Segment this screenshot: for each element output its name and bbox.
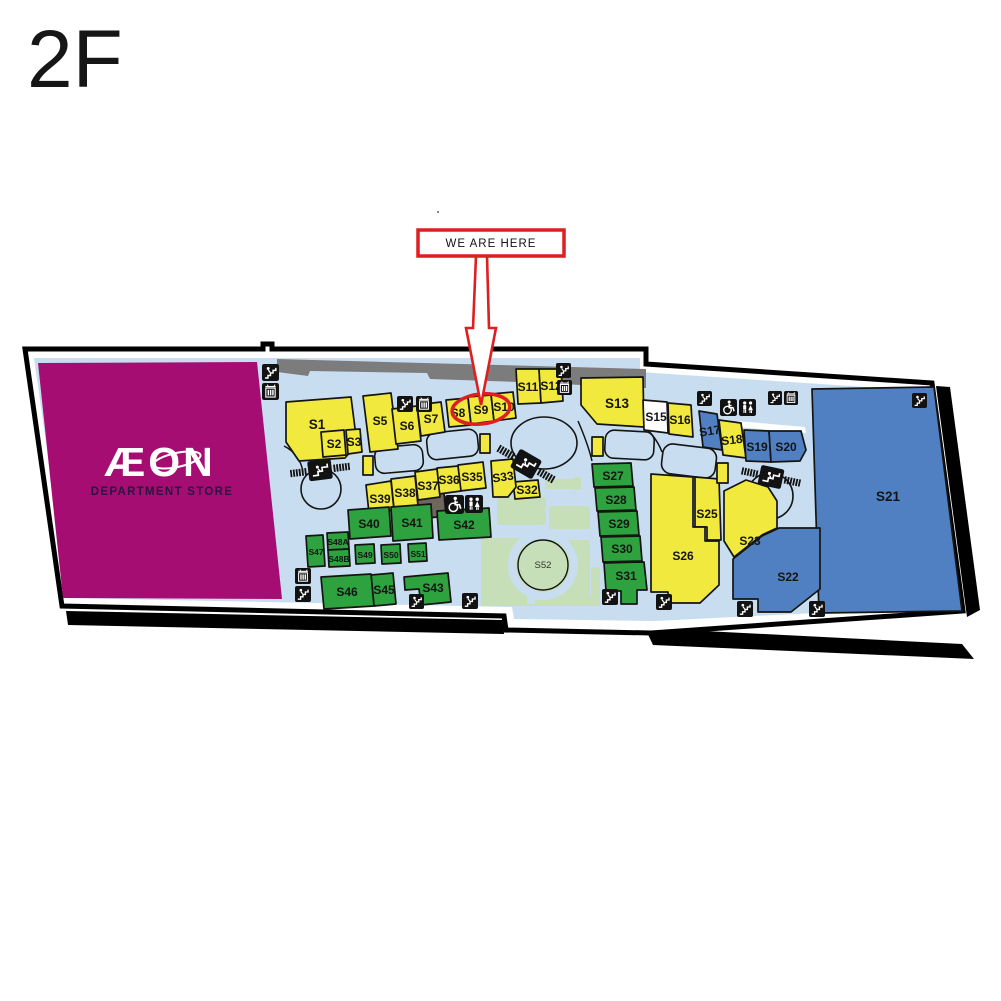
shop-label: S49 (357, 550, 372, 560)
shop-label: S25 (696, 507, 718, 521)
stairs-icon (409, 594, 424, 609)
shop-label: S39 (369, 492, 391, 506)
kiosk[interactable] (592, 437, 603, 456)
shop-s29[interactable]: S29 (598, 511, 639, 536)
shop-label: S31 (615, 569, 637, 583)
shop-label: S40 (358, 517, 380, 531)
shop-label: S48A (327, 537, 348, 547)
shop-label: S36 (438, 473, 460, 487)
shop-label: S41 (401, 516, 423, 530)
mall-floor-map: 2F ÆON DEPARTMENT STORE S52 (0, 0, 1001, 1001)
stairs-icon (397, 396, 413, 412)
elevator-icon (557, 380, 572, 395)
shop-label: S30 (611, 542, 633, 556)
shop-s37[interactable]: S37 (415, 469, 440, 500)
shop-label: S6 (400, 419, 415, 433)
shop-label: S47 (308, 547, 323, 557)
shop-s45[interactable]: S45 (371, 573, 396, 606)
stray-mark (437, 211, 439, 213)
kiosk[interactable] (717, 463, 728, 483)
stairs-icon (809, 601, 825, 617)
shop-label: S20 (775, 440, 797, 454)
shop-label: S42 (453, 518, 475, 532)
elevator-icon (784, 391, 798, 405)
shop-s38[interactable]: S38 (391, 476, 418, 509)
shop-label: S45 (373, 583, 395, 597)
shop-label: S46 (336, 585, 358, 599)
shop-label: S21 (876, 489, 901, 504)
shop-s47[interactable]: S47 (306, 535, 325, 567)
shop-label: S29 (608, 517, 630, 531)
shop-label: S22 (777, 570, 799, 584)
stairs-icon (768, 391, 782, 405)
shop-s19[interactable]: S19 (744, 430, 771, 462)
floor-map-page: 2F ÆON DEPARTMENT STORE S52 (0, 0, 1001, 1001)
shop-s11[interactable]: S11 (516, 369, 541, 404)
elevator-icon (295, 568, 311, 584)
stairs-icon (295, 586, 311, 602)
shop-s46[interactable]: S46 (321, 574, 374, 609)
shop-label: S52 (535, 560, 552, 571)
shop-label: S2 (327, 437, 342, 451)
anchor-store-aeon[interactable]: ÆON DEPARTMENT STORE (38, 362, 282, 599)
shop-label: S11 (518, 380, 539, 394)
shop-s15[interactable]: S15 (643, 400, 668, 433)
toilet-icon (739, 399, 756, 416)
stairs-icon (602, 589, 618, 605)
shop-label: S5 (373, 414, 388, 428)
shop-s48a[interactable]: S48A (327, 532, 349, 550)
shop-label: S7 (424, 412, 439, 426)
shop-label: S13 (605, 396, 630, 411)
shop-s2[interactable]: S2 (321, 430, 346, 457)
shop-s18[interactable]: S18 (719, 420, 746, 458)
shop-label: S16 (669, 413, 691, 427)
shop-label: S50 (383, 550, 398, 560)
kiosk[interactable] (363, 456, 373, 475)
stairs-icon (912, 393, 927, 408)
shop-s51[interactable]: S51 (408, 543, 427, 562)
shop-s32[interactable]: S32 (513, 480, 540, 499)
stairs-icon (462, 593, 478, 609)
wheelchair-icon (720, 399, 737, 416)
shop-s48b[interactable]: S48B (328, 549, 350, 567)
locator-label: WE ARE HERE (446, 238, 537, 250)
elevator-icon (262, 383, 279, 400)
kiosk[interactable] (480, 434, 490, 453)
shop-label: S32 (516, 483, 538, 497)
stairs-icon (697, 391, 712, 406)
shop-label: S1 (309, 417, 326, 432)
shop-s49[interactable]: S49 (355, 544, 375, 564)
shop-s3[interactable]: S3 (346, 429, 362, 454)
elevator-icon (416, 396, 432, 412)
shop-label: S37 (417, 479, 439, 493)
shop-label: S15 (645, 410, 667, 424)
shop-s40[interactable]: S40 (348, 507, 391, 539)
shop-label: S10 (493, 400, 515, 414)
shops-layer: S1 S2 S3 S5 S6 S7 S8 S9 S10 S11 S12 S13 … (286, 369, 962, 613)
shop-label: S27 (602, 469, 624, 483)
shop-s30[interactable]: S30 (601, 536, 642, 562)
shop-label: S23 (739, 534, 761, 548)
stairs-icon (262, 364, 279, 381)
stairs-icon (556, 363, 571, 378)
shop-label: S48B (328, 554, 349, 564)
shop-s20[interactable]: S20 (769, 431, 806, 462)
shop-s36[interactable]: S36 (437, 466, 461, 494)
shop-label: S28 (605, 493, 627, 507)
shop-label: S3 (347, 435, 362, 449)
anchor-store-subtitle: DEPARTMENT STORE (91, 486, 233, 498)
stairs-icon (656, 594, 672, 610)
shop-s42[interactable]: S42 (437, 508, 491, 540)
shop-label: S35 (461, 470, 483, 484)
shop-s16[interactable]: S16 (668, 403, 693, 437)
shop-label: S43 (422, 581, 444, 595)
shop-label: S26 (672, 549, 694, 563)
toilet-icon (465, 495, 483, 513)
stairs-icon (737, 601, 753, 617)
shop-s41[interactable]: S41 (391, 504, 433, 541)
shop-label: S18 (720, 432, 743, 449)
shop-label: S33 (491, 469, 514, 486)
shop-label: S38 (394, 486, 416, 500)
floor-label: 2F (27, 14, 123, 105)
shop-s27[interactable]: S27 (592, 463, 633, 487)
shop-s28[interactable]: S28 (595, 487, 636, 511)
shop-label: S51 (410, 549, 425, 559)
shop-s35[interactable]: S35 (458, 462, 486, 491)
wheelchair-icon (445, 495, 464, 514)
shop-s50[interactable]: S50 (381, 544, 401, 564)
shop-label: S19 (746, 440, 768, 454)
anchor-store-logo: ÆON (104, 439, 216, 485)
